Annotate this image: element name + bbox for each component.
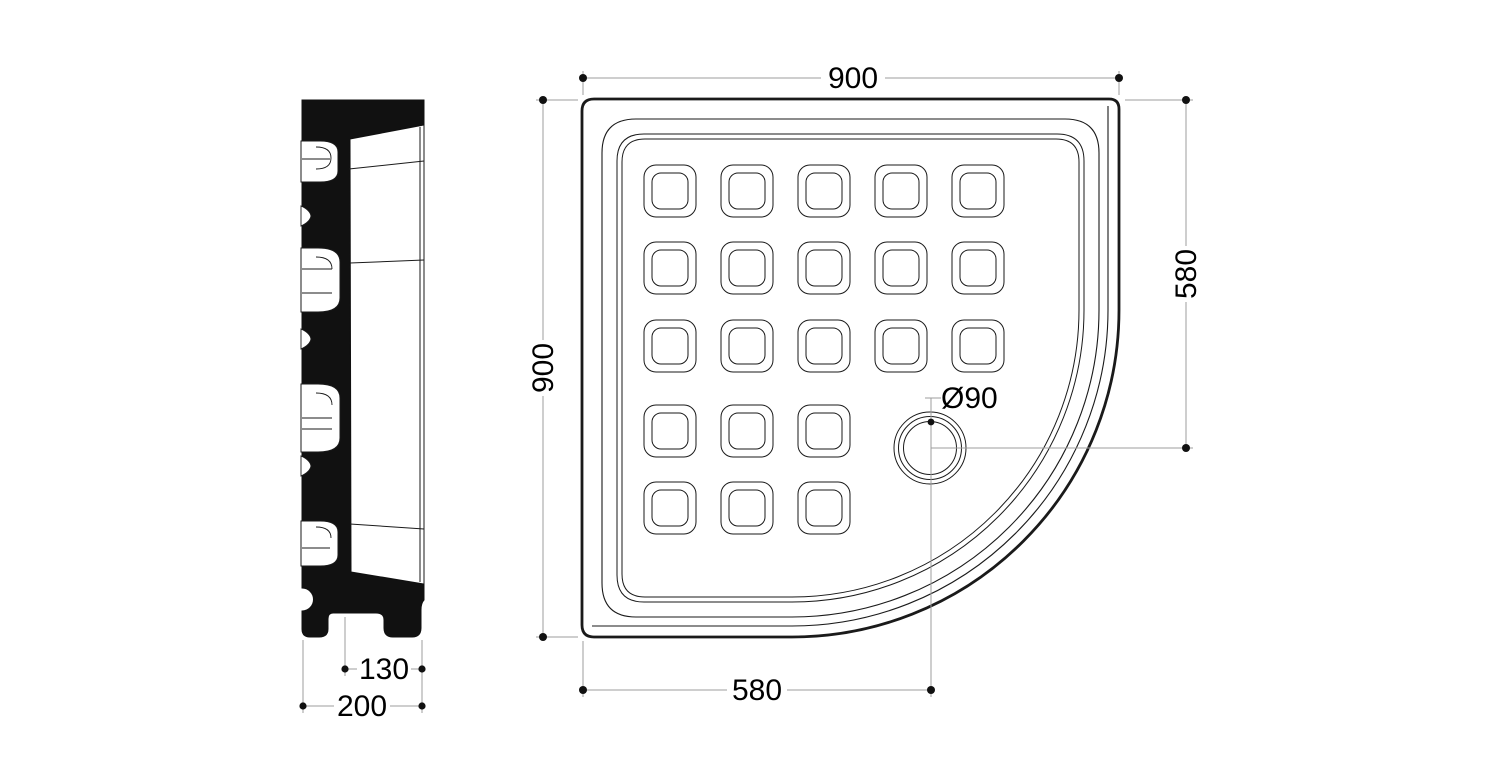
dim-side-inner-depth: 130	[359, 653, 409, 686]
dim-top-width: 900	[828, 62, 878, 95]
tray-rim-lip-inner	[622, 139, 1079, 597]
top-plan-view	[582, 99, 1119, 637]
dim-left-height: 900	[527, 343, 560, 393]
technical-drawing-canvas: 900 900 580 580 Ø90 130 200	[0, 0, 1500, 772]
rib-cavity	[301, 521, 338, 566]
dimension-dots	[299, 74, 1190, 710]
side-section-view	[301, 100, 424, 637]
side-face-lines	[349, 125, 424, 584]
anti-slip-pattern	[644, 165, 1004, 534]
dim-right-height: 580	[1170, 249, 1203, 299]
dim-bottom-offset: 580	[732, 674, 782, 707]
drawing-page: 900 900 580 580 Ø90 130 200	[0, 0, 1500, 772]
dim-side-overall-depth: 200	[337, 690, 387, 723]
dimension-texts: 900 900 580 580 Ø90 130 200	[337, 62, 1203, 723]
dim-drain-diameter: Ø90	[941, 382, 998, 415]
